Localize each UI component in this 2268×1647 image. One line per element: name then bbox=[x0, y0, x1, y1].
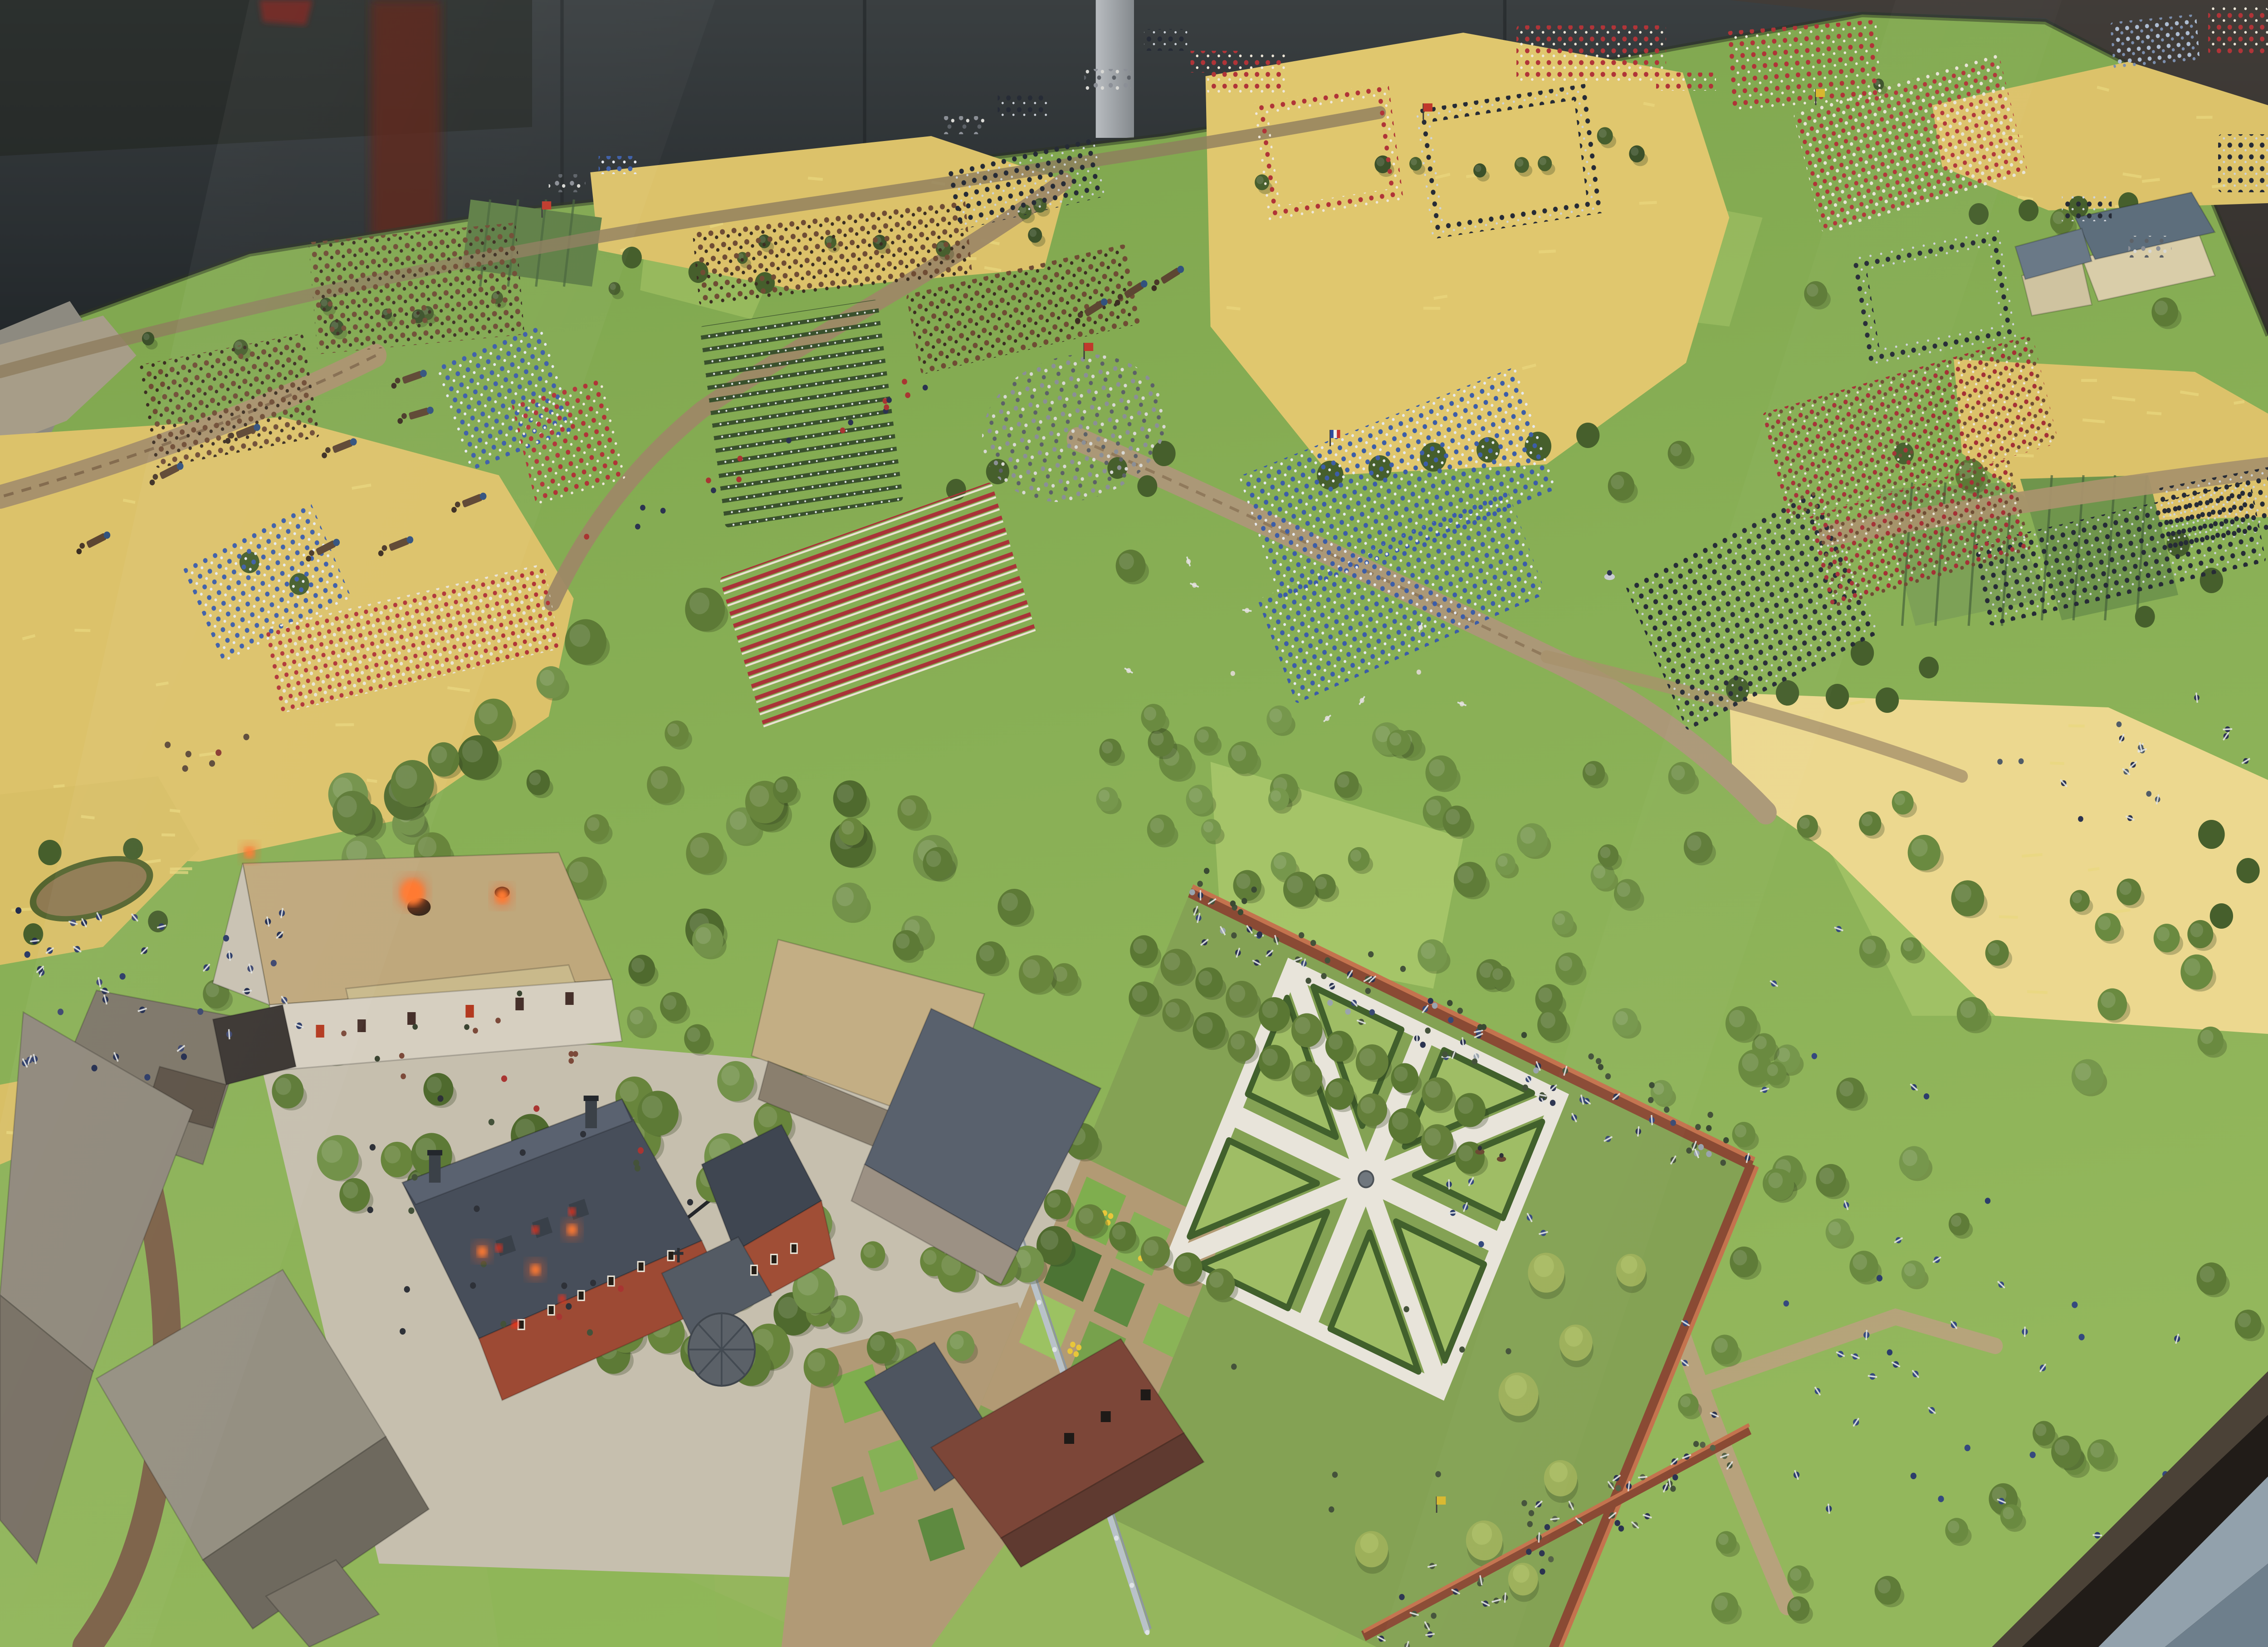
distant-troop-block bbox=[1191, 51, 1241, 73]
figure bbox=[1257, 931, 1262, 938]
hedge-bush bbox=[1876, 687, 1899, 713]
tree-light bbox=[1554, 913, 1565, 925]
figure bbox=[473, 1028, 478, 1033]
musket-glint bbox=[1828, 1504, 1829, 1514]
tree-light bbox=[540, 670, 555, 686]
figure bbox=[1305, 978, 1311, 984]
tree-light bbox=[1789, 1599, 1801, 1611]
tree-light bbox=[2003, 1507, 2014, 1519]
distant-troop-block bbox=[2062, 196, 2112, 221]
figure bbox=[1887, 1349, 1892, 1355]
tree-light bbox=[1262, 1048, 1278, 1066]
riflemen-chevrons-body bbox=[699, 299, 903, 528]
tree-light bbox=[1360, 1097, 1375, 1113]
figure bbox=[1368, 951, 1374, 958]
riflemen-chevrons bbox=[699, 299, 903, 528]
figure bbox=[401, 1073, 406, 1079]
figure bbox=[500, 1321, 506, 1327]
tree-light bbox=[1394, 1067, 1408, 1082]
figure bbox=[1448, 1017, 1453, 1023]
tree-light bbox=[1497, 856, 1507, 867]
wheat-streak bbox=[2088, 868, 2099, 870]
tree-light bbox=[1903, 940, 1913, 951]
tree-light bbox=[462, 740, 483, 762]
wheat-streak bbox=[2234, 402, 2244, 404]
garden-rider bbox=[1499, 1153, 1504, 1158]
figure bbox=[1670, 1486, 1676, 1492]
tree-light bbox=[1376, 157, 1384, 166]
tree-light bbox=[2200, 1030, 2214, 1044]
tree-light bbox=[1911, 838, 1928, 856]
figure bbox=[520, 1150, 526, 1156]
figure bbox=[1706, 1151, 1711, 1157]
tree-light bbox=[1599, 129, 1607, 138]
tree-light bbox=[1828, 1222, 1841, 1235]
tree-light bbox=[1236, 873, 1250, 889]
musket-glint bbox=[1638, 1477, 1647, 1478]
figure bbox=[1427, 998, 1433, 1004]
tree-light bbox=[1457, 866, 1474, 883]
burning-window-glow bbox=[495, 1244, 503, 1252]
figure bbox=[1327, 1000, 1333, 1006]
figure bbox=[470, 1282, 476, 1289]
tree-light bbox=[1790, 1568, 1801, 1581]
tree-light bbox=[1902, 1150, 1917, 1166]
musket-glint bbox=[2223, 729, 2233, 730]
tree-light bbox=[1742, 1053, 1759, 1072]
wheat-streak bbox=[1227, 307, 1241, 309]
tree-light bbox=[2155, 301, 2168, 315]
tree-light bbox=[1839, 1081, 1853, 1096]
tree-light bbox=[1209, 1272, 1224, 1288]
figure bbox=[1707, 1112, 1713, 1118]
tree-light bbox=[2090, 1442, 2104, 1457]
museum-diorama-photo bbox=[0, 0, 2268, 1647]
tree-light bbox=[2098, 916, 2111, 930]
figure bbox=[1459, 1346, 1465, 1353]
figure bbox=[501, 1075, 507, 1082]
fire bbox=[530, 1264, 540, 1275]
wheat-streak bbox=[1639, 202, 1657, 203]
figure bbox=[1710, 1445, 1716, 1451]
tree-light bbox=[950, 1334, 964, 1349]
figure bbox=[1965, 1445, 1970, 1451]
tree-light bbox=[1079, 1208, 1093, 1224]
figure bbox=[848, 419, 853, 425]
tree-light bbox=[721, 1066, 740, 1086]
figure bbox=[1417, 670, 1421, 675]
figure bbox=[902, 379, 907, 385]
figure bbox=[1938, 1496, 1944, 1502]
figure bbox=[1812, 1053, 1817, 1059]
figure bbox=[1242, 898, 1247, 904]
figure bbox=[2146, 791, 2151, 797]
tree-light bbox=[1862, 939, 1876, 954]
musket-glint bbox=[1448, 1213, 1457, 1213]
tree-light bbox=[1540, 1012, 1555, 1028]
tree-light bbox=[587, 817, 600, 831]
figure bbox=[1299, 932, 1304, 939]
figure bbox=[618, 1286, 624, 1292]
wheat-streak bbox=[54, 786, 64, 787]
figure bbox=[404, 1286, 410, 1292]
balustrade-post bbox=[1129, 1583, 1134, 1588]
figure bbox=[2030, 1452, 2036, 1458]
figure bbox=[1403, 1306, 1409, 1312]
figure bbox=[1997, 759, 2003, 765]
wheat-streak bbox=[2142, 180, 2160, 181]
tree-light bbox=[1177, 1256, 1191, 1272]
figure bbox=[1615, 1485, 1621, 1491]
tree-light bbox=[1593, 865, 1606, 878]
fire bbox=[567, 1224, 577, 1235]
wheat-streak bbox=[2082, 420, 2105, 422]
musket-glint bbox=[1449, 1179, 1449, 1189]
musket-glint bbox=[2093, 1535, 2102, 1535]
figure bbox=[1230, 901, 1236, 907]
tree-light bbox=[1853, 1254, 1867, 1270]
figure bbox=[437, 1095, 443, 1101]
wheat-streak bbox=[2027, 992, 2048, 993]
figure bbox=[1472, 1058, 1477, 1065]
red-corner-topright-body bbox=[2208, 7, 2268, 54]
figure bbox=[687, 1199, 693, 1205]
tree-light bbox=[663, 995, 677, 1010]
distant-troop-block bbox=[1573, 62, 1640, 80]
figure bbox=[1522, 1085, 1528, 1091]
tree-light bbox=[667, 723, 679, 736]
tree-light bbox=[620, 1081, 639, 1102]
tree-light bbox=[529, 772, 541, 785]
figure bbox=[2019, 758, 2024, 764]
tree-light bbox=[1164, 953, 1180, 970]
figure bbox=[1420, 1042, 1426, 1048]
tree-light bbox=[642, 1096, 663, 1118]
tree-light bbox=[836, 887, 854, 906]
figure bbox=[905, 392, 910, 398]
distant-troop-block bbox=[941, 116, 984, 134]
figure bbox=[2078, 816, 2083, 822]
tree-light bbox=[1538, 988, 1552, 1003]
figure bbox=[1698, 1144, 1704, 1150]
tree-light bbox=[1047, 1193, 1061, 1208]
chateau-window bbox=[609, 1277, 614, 1285]
wheat-streak bbox=[2068, 726, 2085, 726]
tree-light bbox=[1955, 884, 1971, 902]
chateau-chimney bbox=[429, 1154, 441, 1183]
wheat-streak bbox=[2022, 854, 2042, 856]
tree-light bbox=[1392, 1112, 1408, 1130]
figure bbox=[660, 508, 666, 514]
burning-window-glow bbox=[512, 1320, 519, 1328]
figure bbox=[1251, 887, 1256, 893]
wheat-streak bbox=[74, 630, 90, 631]
tree-light bbox=[1540, 157, 1547, 165]
figure bbox=[2116, 721, 2122, 727]
tree-light bbox=[1670, 443, 1682, 456]
tree-light bbox=[1516, 159, 1523, 167]
tree-light bbox=[1585, 764, 1596, 776]
tree-light bbox=[1799, 817, 1809, 828]
fire bbox=[495, 889, 508, 903]
tree-light bbox=[631, 958, 645, 972]
tree-light bbox=[776, 779, 788, 793]
figure bbox=[375, 1056, 380, 1062]
figure bbox=[1548, 1556, 1554, 1563]
tree-light bbox=[863, 1244, 875, 1258]
tree-light bbox=[1426, 799, 1441, 816]
tree-light bbox=[1425, 1128, 1441, 1146]
barn-window bbox=[407, 1012, 415, 1025]
distant-troop-block bbox=[1144, 29, 1187, 51]
tree-light bbox=[1735, 1125, 1746, 1137]
tree-light bbox=[1718, 1534, 1729, 1545]
flag-cloth bbox=[1334, 430, 1337, 438]
tree-light bbox=[1295, 1065, 1310, 1082]
wheat-streak bbox=[2014, 455, 2033, 456]
chimney-cap bbox=[427, 1150, 442, 1155]
tree-light bbox=[1022, 960, 1040, 979]
chateau-window bbox=[639, 1262, 644, 1271]
tree-light bbox=[2075, 1063, 2092, 1081]
chateau-window bbox=[752, 1266, 757, 1274]
figure bbox=[584, 534, 589, 540]
figure bbox=[1618, 1525, 1624, 1532]
figure bbox=[1706, 1125, 1711, 1131]
chimney-cap bbox=[584, 1096, 599, 1101]
figure bbox=[1700, 1442, 1705, 1448]
figure bbox=[556, 1314, 562, 1320]
figure bbox=[1189, 889, 1195, 896]
figure bbox=[1325, 957, 1330, 964]
dark-right-farm-body bbox=[2218, 134, 2268, 192]
figure bbox=[1478, 1241, 1484, 1247]
tree-light bbox=[343, 1182, 358, 1199]
figure bbox=[1321, 973, 1326, 979]
balustrade-post bbox=[1052, 1347, 1057, 1352]
tree-light bbox=[923, 1250, 937, 1265]
hedge-bush bbox=[38, 840, 61, 865]
tree-light bbox=[1329, 1034, 1343, 1050]
tree-light bbox=[1421, 943, 1435, 959]
flag-cloth bbox=[1816, 89, 1825, 97]
figure bbox=[1457, 1008, 1463, 1014]
figure bbox=[635, 1165, 640, 1171]
tree-light bbox=[2200, 1266, 2215, 1282]
figure bbox=[1721, 1160, 1726, 1166]
figure bbox=[923, 385, 928, 390]
figure bbox=[1345, 1009, 1350, 1015]
tree-light bbox=[2156, 927, 2170, 941]
figure bbox=[1481, 1024, 1486, 1030]
tree-light bbox=[1119, 553, 1134, 570]
figure bbox=[1924, 1093, 1929, 1100]
tree-light bbox=[2072, 892, 2082, 903]
tree-light bbox=[2054, 1439, 2069, 1456]
tree-light bbox=[1819, 1168, 1834, 1184]
tree-light bbox=[1030, 229, 1037, 237]
tree-light bbox=[1520, 827, 1535, 844]
figure bbox=[1332, 1472, 1338, 1478]
chateau-window bbox=[772, 1255, 777, 1263]
wheat-streak bbox=[1999, 916, 2018, 917]
figure bbox=[1365, 988, 1371, 994]
tree-light bbox=[2101, 992, 2115, 1008]
tree-light bbox=[1001, 893, 1018, 911]
tree-light bbox=[926, 851, 941, 867]
tree-light bbox=[1271, 790, 1281, 802]
tree-light bbox=[1458, 1097, 1473, 1114]
figure bbox=[1672, 1474, 1678, 1481]
figure bbox=[2072, 1301, 2077, 1308]
figure bbox=[590, 1280, 596, 1286]
figure bbox=[706, 478, 711, 483]
tree-light bbox=[807, 1352, 825, 1372]
figure bbox=[1686, 1147, 1691, 1154]
hedge-bush bbox=[2135, 606, 2155, 628]
musket-glint bbox=[1866, 1330, 1867, 1340]
tree-light bbox=[1231, 745, 1246, 761]
tree-light bbox=[758, 1106, 777, 1127]
tree-light bbox=[1337, 774, 1349, 787]
figure bbox=[1521, 1032, 1527, 1038]
figure bbox=[1231, 671, 1235, 676]
figure bbox=[2078, 1334, 2084, 1340]
distant-troop-block bbox=[1084, 69, 1131, 91]
flag-cloth bbox=[1330, 430, 1334, 438]
tree-light bbox=[1411, 159, 1417, 166]
figure bbox=[533, 1105, 539, 1111]
figure bbox=[1693, 1441, 1699, 1447]
figure bbox=[736, 477, 742, 482]
figure bbox=[640, 505, 645, 511]
gardener-window bbox=[1064, 1433, 1074, 1444]
burning-window-glow bbox=[532, 1226, 539, 1234]
figure bbox=[580, 1131, 586, 1137]
figure bbox=[886, 397, 892, 403]
tree-light bbox=[896, 933, 910, 948]
white-cavalry-topright bbox=[2110, 14, 2200, 69]
chateau-window bbox=[669, 1252, 674, 1260]
figure bbox=[1400, 966, 1406, 972]
tree-light bbox=[1389, 732, 1401, 746]
tree-light bbox=[1150, 818, 1164, 833]
tree-light bbox=[1231, 1034, 1245, 1049]
red-corner-topright bbox=[2208, 7, 2268, 54]
figure bbox=[489, 1119, 494, 1125]
tree-light bbox=[1714, 1338, 1728, 1353]
tree-light bbox=[1132, 985, 1148, 1002]
figure bbox=[1784, 1301, 1789, 1307]
tree-light bbox=[1144, 707, 1157, 721]
tree-light bbox=[1269, 708, 1282, 722]
fire bbox=[477, 1246, 487, 1257]
hedge-bush bbox=[1919, 657, 1939, 678]
tree-light bbox=[1768, 1172, 1783, 1188]
distant-troop-block bbox=[1656, 73, 1716, 91]
tree-light bbox=[322, 1140, 342, 1163]
figure bbox=[1425, 1028, 1430, 1034]
distant-troop-block bbox=[2128, 236, 2171, 258]
figure bbox=[517, 990, 522, 996]
tree-light bbox=[837, 785, 854, 803]
figure bbox=[1310, 940, 1316, 946]
figure bbox=[24, 951, 30, 958]
figure bbox=[400, 1328, 406, 1335]
figure bbox=[464, 1024, 469, 1030]
figure bbox=[495, 1018, 501, 1023]
tree-light bbox=[384, 1145, 401, 1163]
tree-light bbox=[1229, 985, 1245, 1003]
garden-rider bbox=[1478, 1146, 1482, 1150]
flag-cloth bbox=[1423, 103, 1432, 112]
tree-light bbox=[1767, 1064, 1778, 1076]
figure bbox=[1231, 932, 1237, 939]
tree-light bbox=[2190, 923, 2204, 937]
tree-light bbox=[1425, 1081, 1441, 1098]
tree-light bbox=[143, 333, 150, 340]
tree-light bbox=[979, 945, 994, 961]
tree-light bbox=[1287, 876, 1303, 893]
balustrade-post bbox=[1114, 1535, 1119, 1540]
figure bbox=[1238, 909, 1243, 916]
tree-light bbox=[1458, 1145, 1473, 1161]
flag-cloth bbox=[1337, 430, 1340, 438]
figure bbox=[573, 1051, 578, 1057]
tree-light bbox=[1600, 847, 1611, 858]
tree-light bbox=[1714, 1596, 1728, 1611]
figure bbox=[15, 907, 21, 914]
tree-light bbox=[1729, 1010, 1745, 1027]
figure bbox=[1877, 1275, 1882, 1282]
balustrade-post bbox=[1037, 1300, 1041, 1305]
tree-light bbox=[2238, 1313, 2251, 1327]
hedge-bush bbox=[1576, 423, 1599, 448]
musket-glint bbox=[2025, 1327, 2025, 1337]
tree-light bbox=[1559, 956, 1573, 971]
white-cavalry-topright-body bbox=[2110, 14, 2200, 69]
tree-light bbox=[1256, 176, 1264, 184]
wheat-streak bbox=[2050, 763, 2064, 764]
tree-light bbox=[1446, 809, 1460, 824]
tree-light bbox=[2035, 1424, 2047, 1436]
tree-light bbox=[1041, 1230, 1059, 1250]
tree-light bbox=[1475, 165, 1481, 172]
tree-light bbox=[1611, 475, 1624, 489]
figure bbox=[840, 428, 846, 434]
balustrade-post bbox=[1145, 1630, 1149, 1635]
figure bbox=[412, 1024, 418, 1030]
tree-light bbox=[1262, 1001, 1278, 1018]
tree-light bbox=[1904, 1263, 1916, 1277]
tree-light bbox=[1102, 741, 1113, 754]
figure bbox=[566, 1303, 572, 1310]
figure bbox=[884, 404, 889, 410]
tree-light bbox=[1894, 794, 1905, 805]
tree-light bbox=[1189, 788, 1202, 803]
musket-glint bbox=[1242, 610, 1251, 611]
tree-light bbox=[1492, 968, 1503, 980]
tree-light bbox=[1133, 939, 1147, 954]
tree-light bbox=[1429, 759, 1445, 776]
figure bbox=[408, 1208, 414, 1214]
tree-light bbox=[841, 821, 854, 834]
tree-light bbox=[1350, 850, 1361, 862]
tree-light bbox=[730, 811, 747, 830]
figure bbox=[1985, 1198, 1990, 1204]
tree-light bbox=[1198, 971, 1212, 986]
hedge-bush bbox=[1137, 475, 1157, 497]
